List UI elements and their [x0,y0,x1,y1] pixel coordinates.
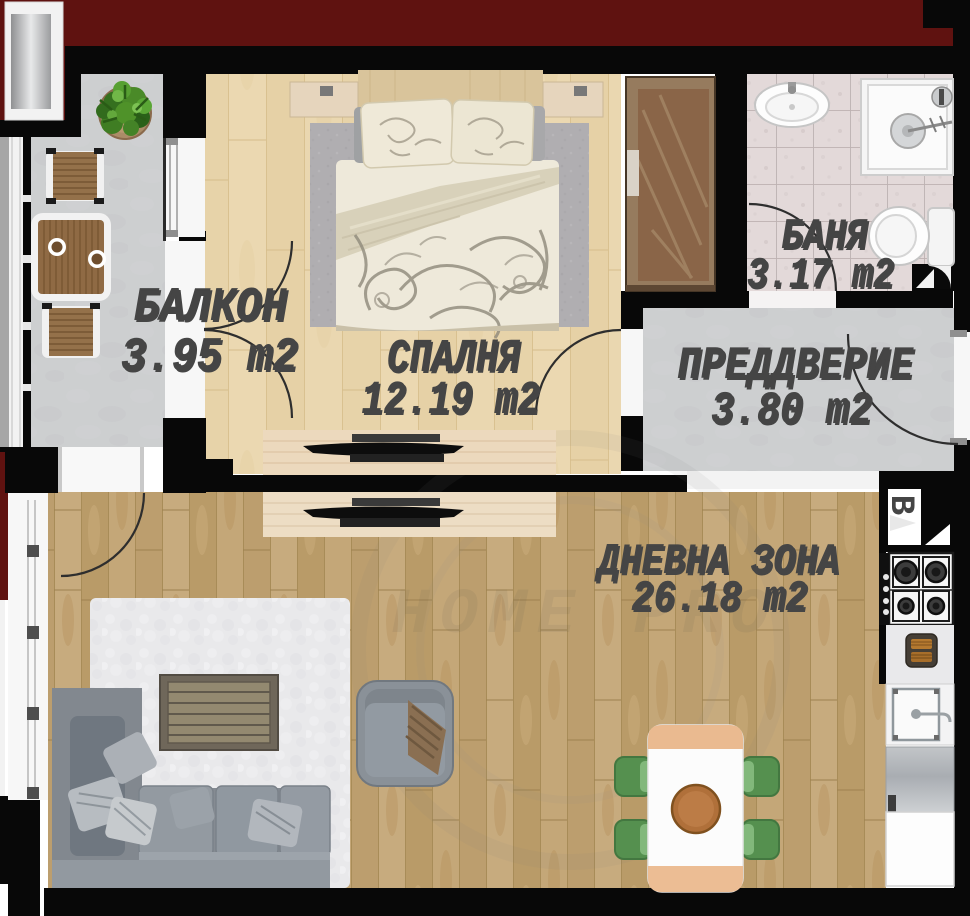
svg-text:3.17 m2: 3.17 m2 [749,252,896,302]
svg-text:3.80 m2: 3.80 m2 [713,387,874,439]
svg-text:БАЛКОН: БАЛКОН [136,282,290,337]
svg-text:3.95 m2: 3.95 m2 [123,332,300,387]
svg-text:26.18 m2: 26.18 m2 [633,576,809,626]
svg-text:B: B [881,495,919,515]
svg-text:12.19 m2: 12.19 m2 [363,376,541,429]
